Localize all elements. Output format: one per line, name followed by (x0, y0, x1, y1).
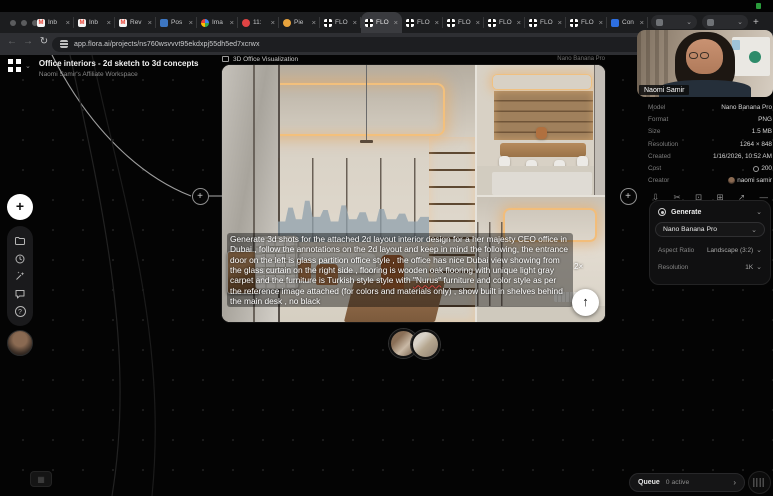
camera-indicator-icon (756, 3, 761, 9)
minimize-window-icon[interactable] (21, 20, 27, 26)
property-value: PNG (758, 116, 772, 123)
wand-sparkle-icon[interactable] (14, 270, 26, 282)
gmail-favicon: M (78, 19, 86, 27)
node-model-badge: Nano Banana Pro (557, 56, 605, 62)
submit-prompt-button[interactable]: ↑ (572, 289, 599, 316)
ceiling-cove-light (252, 83, 444, 136)
back-icon[interactable]: ← (4, 36, 20, 47)
browser-tab[interactable]: FLO× (484, 12, 525, 33)
browser-tab[interactable]: FLO× (402, 12, 443, 33)
flora-favicon (447, 19, 455, 27)
minimap-button[interactable]: ▦ (30, 471, 52, 487)
chevron-down-icon: ⌄ (756, 263, 762, 271)
chevron-down-icon[interactable]: ⌄ (756, 208, 762, 216)
flora-logo-icon[interactable] (8, 59, 22, 73)
tab-group-chip[interactable]: ⌄ (702, 15, 748, 29)
node-header[interactable]: 3D Office Visualization Nano Banana Pro (222, 54, 605, 64)
tab-close-icon[interactable]: × (435, 19, 439, 27)
tab-title: Con (622, 19, 637, 26)
tab-close-icon[interactable]: × (107, 19, 111, 27)
prompt-text[interactable]: Generate 3d shots for the attached 2d la… (227, 233, 573, 307)
browser-tab[interactable]: FLO× (320, 12, 361, 33)
tab-close-icon[interactable]: × (312, 19, 316, 27)
red-favicon (242, 19, 250, 27)
node-input-connector[interactable]: + (192, 188, 209, 205)
resolution-row[interactable]: Resolution 1K⌄ (650, 263, 770, 271)
tab-title: FLO (335, 19, 350, 26)
property-value: 1.5 MB (752, 128, 772, 135)
chat-icon[interactable] (14, 288, 26, 300)
project-title[interactable]: Office interiors - 2d sketch to 3d conce… (39, 59, 199, 68)
flora-favicon (570, 19, 578, 27)
help-icon[interactable]: ? (15, 306, 26, 317)
chevron-down-icon: ⌄ (751, 226, 757, 234)
tab-close-icon[interactable]: × (230, 19, 234, 27)
property-row: Cost200 (648, 162, 772, 174)
pendant-light (366, 65, 367, 140)
glasses (689, 52, 709, 59)
resolution-value: 1K (745, 264, 753, 271)
zoom-level-badge: 2× (574, 262, 583, 271)
tab-close-icon[interactable]: × (353, 19, 357, 27)
tab-title: FLO (458, 19, 473, 26)
tab-close-icon[interactable]: × (558, 19, 562, 27)
tab-title: FLO (499, 19, 514, 26)
property-row: FormatPNG (648, 113, 772, 125)
browser-tab-active[interactable]: FLO× (361, 12, 402, 33)
queue-status-bar[interactable]: Queue 0 active › (629, 473, 745, 492)
tab-close-icon[interactable]: × (271, 19, 275, 27)
property-label: Created (648, 153, 671, 160)
tab-title: Rev (130, 19, 145, 26)
chevron-down-icon: ⌄ (756, 246, 762, 254)
generated-image-card[interactable]: Generate 3d shots for the attached 2d la… (222, 65, 605, 322)
property-value: 200 (753, 165, 772, 172)
user-avatar[interactable] (7, 330, 33, 356)
flora-favicon (406, 19, 414, 27)
tab-close-icon[interactable]: × (394, 19, 398, 27)
tab-title: FLO (581, 19, 596, 26)
site-info-icon[interactable] (60, 40, 68, 48)
meeting-table (500, 143, 586, 157)
browser-tab[interactable]: 11:× (238, 12, 279, 33)
property-label: Format (648, 116, 668, 123)
add-node-button[interactable]: + (7, 194, 33, 220)
image-icon (222, 56, 229, 62)
browser-tab[interactable]: Pie× (279, 12, 320, 33)
property-row: Creatornaomi samir (648, 175, 772, 187)
folder-icon[interactable] (14, 235, 26, 247)
property-value: 1/16/2026, 10:52 AM (713, 153, 772, 160)
history-icon[interactable] (14, 253, 26, 265)
queue-status: 0 active (666, 479, 728, 486)
generate-panel: Generate ⌄ Nano Banana Pro ⌄ Aspect Rati… (649, 200, 771, 285)
carpet (492, 172, 592, 195)
property-row: ModelNano Banana Pro (648, 101, 772, 113)
wall-art (732, 40, 740, 50)
avatar-icon (728, 177, 735, 184)
tab-group-chip[interactable]: ⌄ (651, 15, 697, 29)
model-select[interactable]: Nano Banana Pro ⌄ (655, 222, 765, 237)
tab-title: FLO (376, 19, 391, 26)
aspect-ratio-row[interactable]: Aspect Ratio Landscape (3:2)⌄ (650, 246, 770, 254)
workspace-name: Naomi Samir's Affiliate Workspace (39, 71, 199, 78)
property-row: Created1/16/2026, 10:52 AM (648, 150, 772, 162)
property-row: Resolution1264 × 848 (648, 138, 772, 150)
node-title: 3D Office Visualization (233, 56, 553, 63)
image-inspector-panel: ModelNano Banana ProFormatPNGSize1.5 MBR… (648, 101, 772, 202)
blue-favicon (160, 19, 168, 27)
browser-tab[interactable]: Ima× (197, 12, 238, 33)
tab-title: 11: (253, 19, 268, 26)
chevron-down-icon: ⌄ (686, 18, 692, 26)
close-window-icon[interactable] (10, 20, 16, 26)
new-tab-button[interactable]: + (753, 16, 759, 29)
tab-title: Inb (89, 19, 104, 26)
google-favicon (201, 19, 209, 27)
flora-favicon (529, 19, 537, 27)
generate-panel-title: Generate (671, 209, 751, 216)
property-value: 1264 × 848 (740, 141, 772, 148)
tab-close-icon[interactable]: × (640, 19, 644, 27)
property-label: Model (648, 104, 665, 111)
generate-icon (658, 208, 666, 216)
macos-menubar (0, 0, 773, 12)
glass-partition (594, 65, 605, 195)
browser-tab[interactable]: FLO× (525, 12, 566, 33)
gmail-favicon: M (37, 19, 45, 27)
property-label: Resolution (648, 141, 678, 148)
tab-title: Inb (48, 19, 63, 26)
url-text[interactable]: app.flora.ai/projects/ns760wsvvvt95ekdxp… (74, 41, 260, 48)
side-toolbar: ? (7, 226, 33, 326)
resolution-label: Resolution (658, 264, 688, 271)
chair (536, 127, 547, 139)
tab-close-icon[interactable]: × (599, 19, 603, 27)
property-row: Size1.5 MB (648, 126, 772, 138)
property-value: naomi samir (728, 177, 772, 184)
tab-title: FLO (417, 19, 432, 26)
ceiling-cove-light (492, 74, 592, 90)
tab-close-icon[interactable]: × (66, 19, 70, 27)
property-label: Size (648, 128, 660, 135)
property-label: Creator (648, 177, 669, 184)
tab-group-chips: ⌄ ⌄ + (651, 15, 759, 29)
tab-title: Pos (171, 19, 186, 26)
webcam-overlay[interactable]: Naomi Samir (637, 30, 773, 97)
tab-title: Pie (294, 19, 309, 26)
property-label: Cost (648, 165, 661, 172)
queue-label: Queue (638, 479, 660, 486)
tab-close-icon[interactable]: × (189, 19, 193, 27)
aspect-ratio-value: Landscape (3:2) (707, 247, 753, 254)
reference-thumbnail[interactable] (411, 330, 440, 359)
browser-tab[interactable]: FLO× (443, 12, 484, 33)
forward-icon[interactable]: → (20, 36, 36, 47)
chevron-right-icon[interactable]: › (733, 478, 736, 487)
orange-favicon (283, 19, 291, 27)
spellcheck-word: "Nurus" (413, 275, 441, 285)
flora-favicon (365, 19, 373, 27)
tab-close-icon[interactable]: × (476, 19, 480, 27)
webcam-name-label: Naomi Samir (639, 85, 689, 95)
flora-favicon (488, 19, 496, 27)
audio-visualizer-button[interactable] (748, 471, 771, 494)
aspect-ratio-label: Aspect Ratio (658, 247, 694, 254)
office-render-meeting (477, 65, 605, 195)
chevron-down-icon: ⌄ (737, 18, 743, 26)
model-select-value: Nano Banana Pro (663, 226, 717, 233)
property-value: Nano Banana Pro (721, 104, 772, 111)
tab-group-icon (656, 19, 663, 26)
browser-tab[interactable]: MInb× (74, 12, 115, 33)
tab-close-icon[interactable]: × (148, 19, 152, 27)
inspector-rows: ModelNano Banana ProFormatPNGSize1.5 MBR… (648, 101, 772, 187)
tab-group-icon (707, 19, 714, 26)
browser-tab[interactable]: Pos× (156, 12, 197, 33)
tab-title: FLO (540, 19, 555, 26)
flora-favicon (324, 19, 332, 27)
reload-icon[interactable]: ↻ (36, 36, 52, 47)
node-output-connector[interactable]: + (620, 188, 637, 205)
tab-title: Ima (212, 19, 227, 26)
tab-close-icon[interactable]: × (517, 19, 521, 27)
blue2-favicon (611, 19, 619, 27)
tab-strip-tabs: MInb×MInb×MRev×Pos×Ima×11:×Pie×FLO×FLO×F… (33, 12, 648, 33)
chevron-down-icon[interactable]: ⌄ (25, 62, 31, 78)
app-header: ⌄ Office interiors - 2d sketch to 3d con… (8, 59, 198, 78)
gmail-favicon: M (119, 19, 127, 27)
browser-tab[interactable]: FLO× (566, 12, 607, 33)
browser-tab[interactable]: MRev× (115, 12, 156, 33)
coin-icon (753, 166, 759, 172)
browser-tab[interactable]: MInb× (33, 12, 74, 33)
